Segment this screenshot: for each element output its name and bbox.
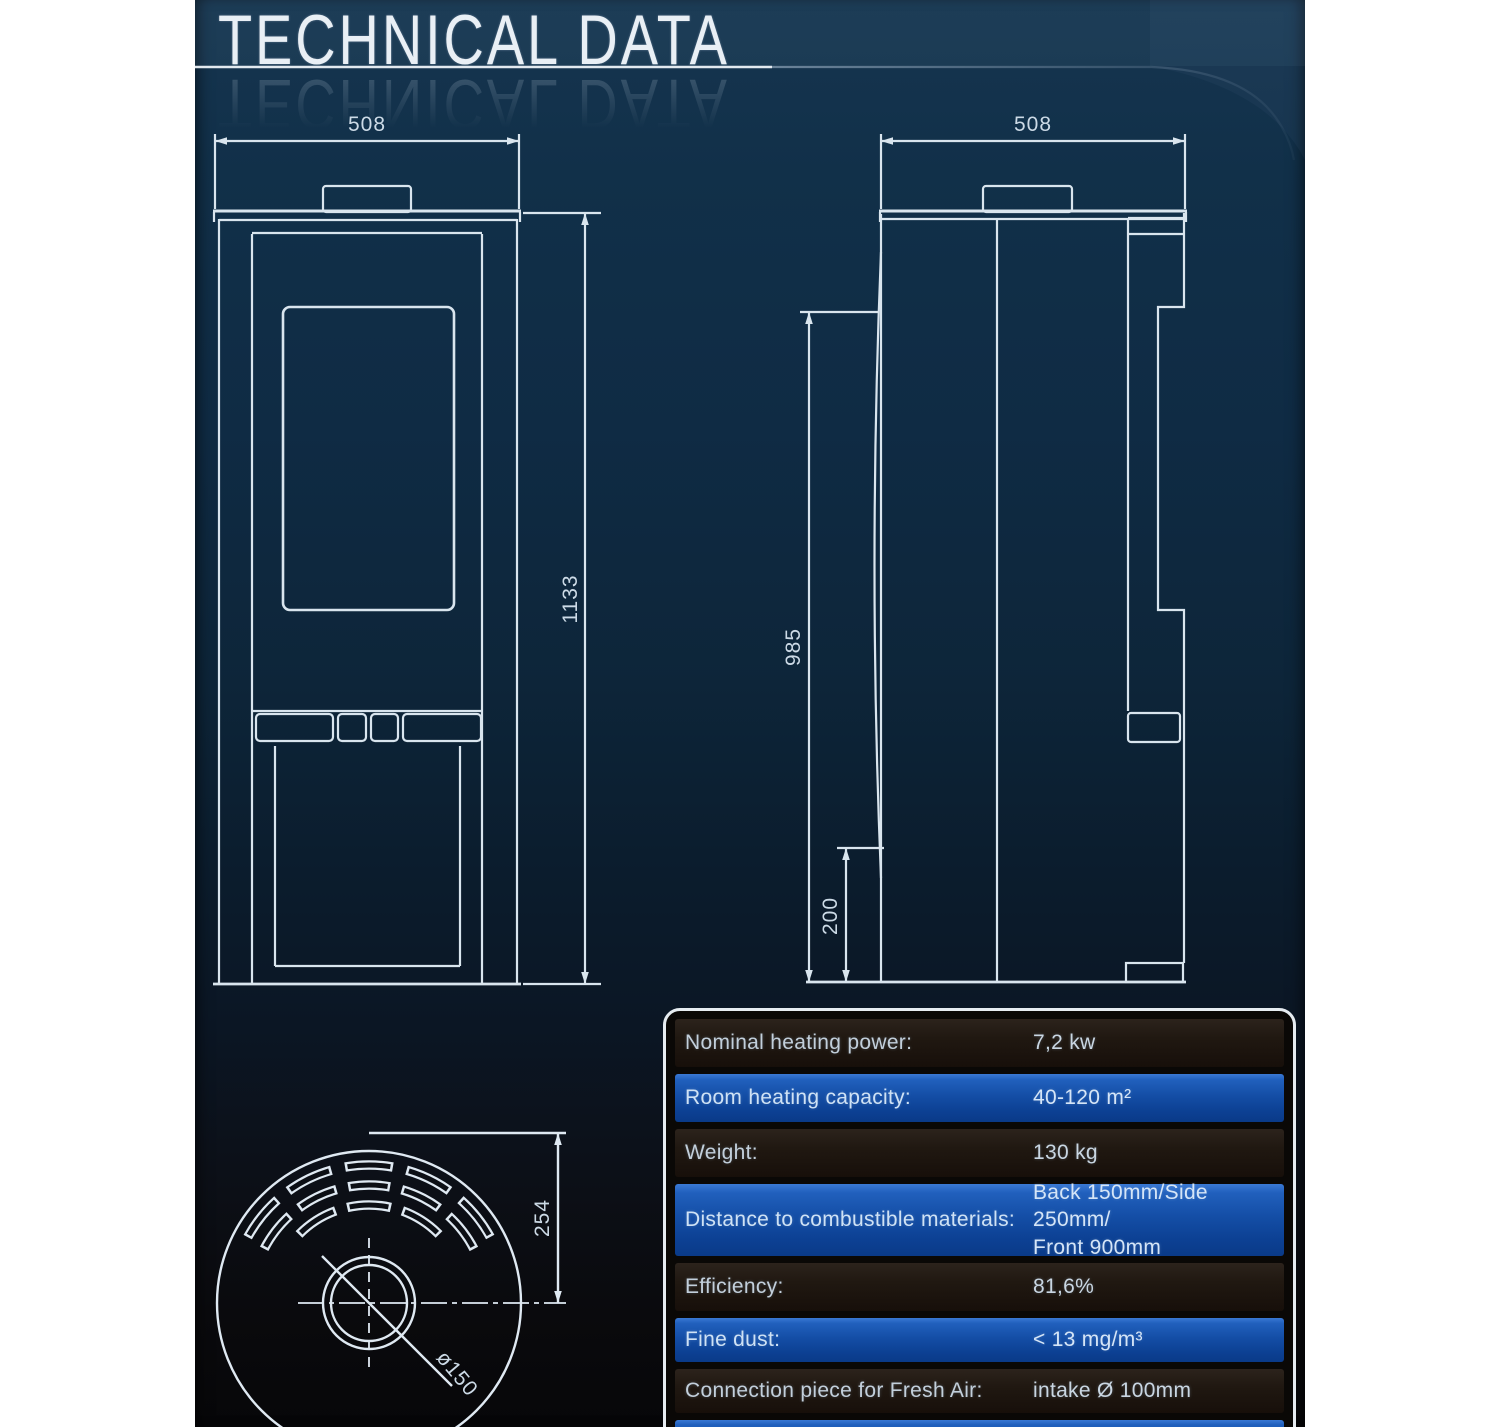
table-row: Weight: 130 kg (675, 1129, 1284, 1177)
top-view-drawing (195, 1116, 566, 1427)
table-row: Room heating capacity: 40-120 m² (675, 1074, 1284, 1122)
spec-label: Room heating capacity: (685, 1086, 1033, 1110)
spec-value: intake Ø 100mm (1033, 1377, 1274, 1404)
dim-flue-diameter-label: ø150 (431, 1347, 482, 1402)
table-row: Connection piece for Fresh Air: intake Ø… (675, 1369, 1284, 1413)
dim-side-height-label: 985 (782, 628, 805, 666)
spec-value: 130 kg (1033, 1139, 1274, 1166)
dim-side-depth-label: 508 (1014, 113, 1052, 136)
spec-label: Distance to combustible materials: (685, 1208, 1033, 1232)
spec-label: Nominal heating power: (685, 1031, 1033, 1055)
spec-value: 81,6% (1033, 1273, 1274, 1300)
spec-value: < 13 mg/m³ (1033, 1326, 1274, 1353)
dim-side-base-label: 200 (819, 897, 842, 935)
page-title-reflection: TECHNICAL DATA (218, 65, 730, 142)
dim-front-height-label: 1133 (559, 574, 582, 623)
front-view-drawing (213, 134, 601, 984)
table-row: Distance to combustible materials: Back … (675, 1184, 1284, 1256)
spec-label: Efficiency: (685, 1275, 1033, 1299)
spec-table: Nominal heating power: 7,2 kw Room heati… (663, 1008, 1296, 1427)
table-row: Fine dust: < 13 mg/m³ (675, 1318, 1284, 1362)
spec-label: Weight: (685, 1141, 1033, 1165)
spec-value: 7,2 kw (1033, 1029, 1274, 1056)
table-row: Efficiency: 81,6% (675, 1263, 1284, 1311)
spec-value: 40-120 m² (1033, 1084, 1274, 1111)
table-row: Nominal heating power: 7,2 kw (675, 1019, 1284, 1067)
side-view-drawing (800, 134, 1187, 982)
dim-top-offset-label: 254 (531, 1199, 554, 1237)
spec-label: Connection piece for Fresh Air: (685, 1379, 1033, 1403)
spec-value: Back 150mm/Side 250mm/ Front 900mm (1033, 1179, 1274, 1261)
spec-label: Fine dust: (685, 1328, 1033, 1352)
title-block: TECHNICAL DATA TECHNICAL DATA (218, 2, 978, 162)
datasheet-page: TECHNICAL DATA TECHNICAL DATA (195, 0, 1305, 1427)
table-row (675, 1420, 1284, 1427)
